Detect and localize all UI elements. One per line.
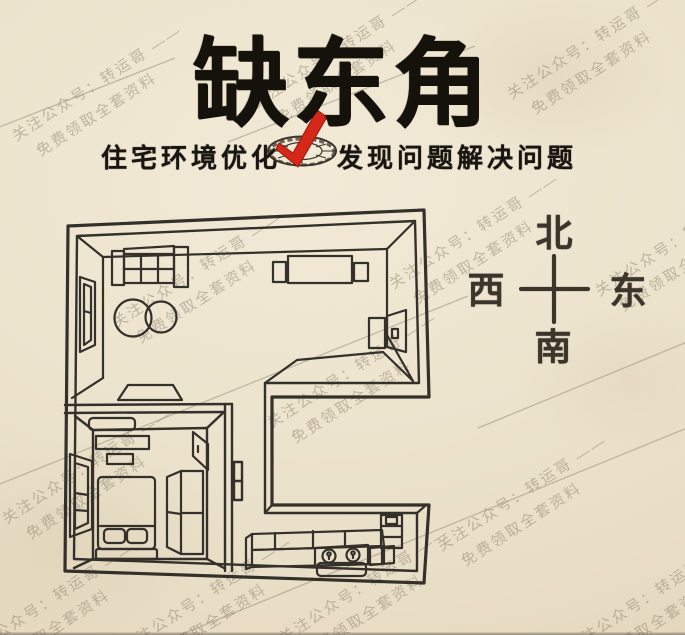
bedroom-furniture — [70, 418, 208, 559]
compass-west-label: 西 — [464, 269, 508, 313]
living-room-window — [80, 277, 95, 352]
bedroom-door — [193, 432, 208, 470]
bed — [96, 477, 157, 559]
page-title: 缺东角 — [0, 6, 685, 145]
threshold-rug — [118, 385, 182, 400]
tv-cabinet — [273, 256, 368, 283]
living-room-door — [369, 310, 406, 352]
compass-south-label: 南 — [531, 326, 575, 370]
subtitle-right: 发现问题解决问题 — [337, 138, 577, 175]
sofa — [112, 246, 188, 287]
living-room — [72, 221, 415, 400]
night-stand — [107, 454, 133, 464]
corridor-window — [234, 462, 242, 500]
poster-canvas: 关注公众号：转运哥 ——免费领取全套资料关注公众号：转运哥 ——免费领取全套资料… — [0, 0, 685, 635]
wardrobe — [167, 471, 203, 554]
compass-cross — [521, 256, 588, 322]
subtitle-left: 住宅环境优化 — [101, 138, 281, 175]
coffee-tables — [115, 300, 177, 337]
compass-north-label: 北 — [532, 212, 576, 256]
compass-east-label: 东 — [606, 270, 650, 314]
